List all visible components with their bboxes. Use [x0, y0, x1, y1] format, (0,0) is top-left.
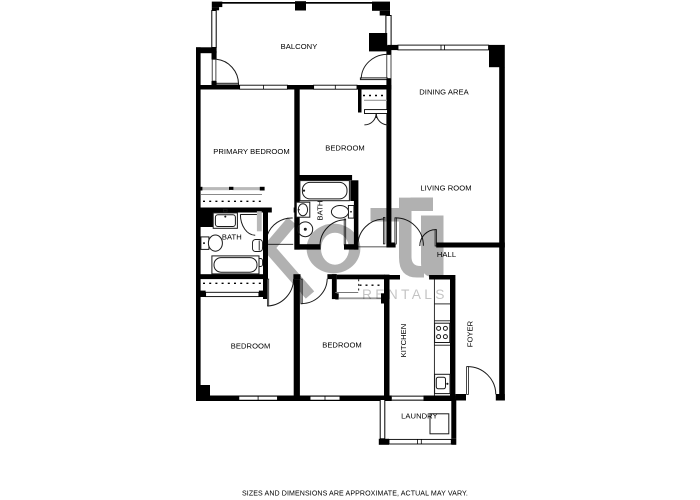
svg-text:BEDROOM: BEDROOM	[322, 341, 362, 350]
svg-text:LAUNDRY: LAUNDRY	[401, 411, 438, 420]
svg-text:RENTALS: RENTALS	[362, 287, 448, 302]
svg-text:DINING AREA: DINING AREA	[419, 88, 469, 97]
svg-text:LIVING ROOM: LIVING ROOM	[420, 184, 471, 193]
svg-text:BATH: BATH	[222, 232, 242, 241]
svg-text:BALCONY: BALCONY	[281, 42, 318, 51]
svg-text:BATH: BATH	[316, 201, 325, 221]
svg-text:BEDROOM: BEDROOM	[325, 144, 365, 153]
svg-text:BEDROOM: BEDROOM	[231, 341, 271, 350]
svg-text:SIZES AND DIMENSIONS ARE APPRO: SIZES AND DIMENSIONS ARE APPROXIMATE, AC…	[242, 490, 468, 497]
svg-text:FOYER: FOYER	[466, 320, 475, 347]
svg-text:KITCHEN: KITCHEN	[399, 324, 408, 358]
svg-text:PRIMARY BEDROOM: PRIMARY BEDROOM	[213, 147, 289, 156]
